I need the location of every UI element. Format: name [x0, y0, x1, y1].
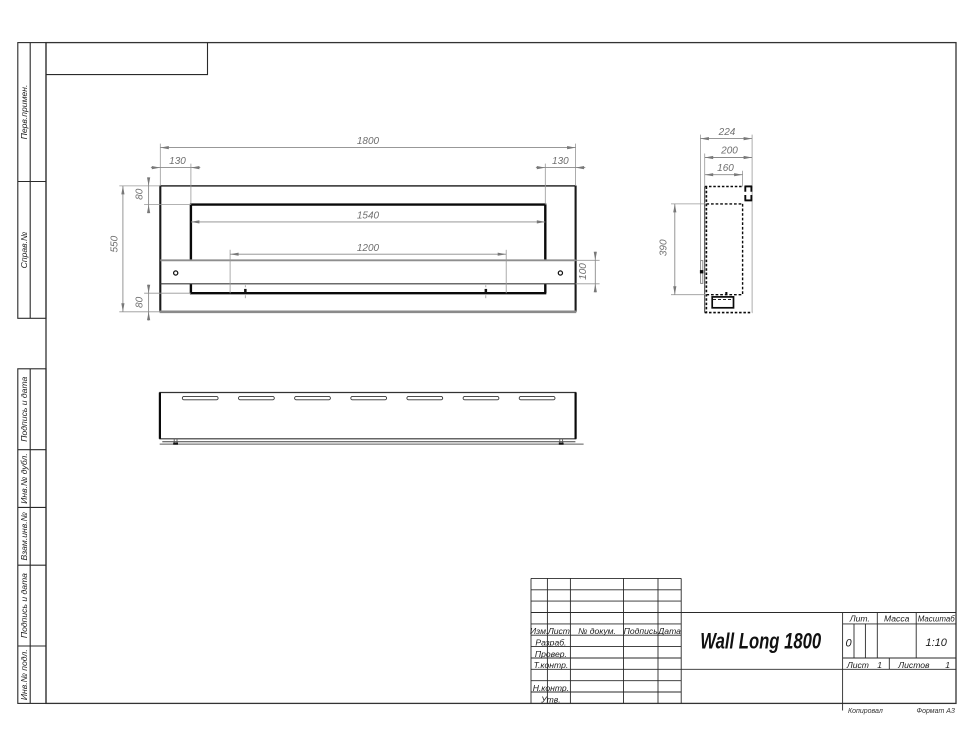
svg-text:100: 100: [578, 263, 589, 280]
svg-text:0: 0: [845, 637, 852, 649]
svg-text:1540: 1540: [357, 211, 380, 222]
svg-text:130: 130: [169, 156, 186, 167]
svg-text:Т.контр.: Т.контр.: [534, 660, 569, 670]
svg-text:1: 1: [877, 660, 882, 670]
svg-text:Подпись: Подпись: [624, 626, 659, 636]
svg-text:1800: 1800: [357, 136, 380, 147]
svg-text:Изм.: Изм.: [530, 626, 548, 636]
svg-text:Wall Long 1800: Wall Long 1800: [700, 629, 821, 654]
svg-text:1:10: 1:10: [925, 637, 947, 649]
svg-text:Утв.: Утв.: [540, 694, 561, 704]
svg-text:Подпись и дата: Подпись и дата: [19, 573, 29, 638]
svg-text:200: 200: [720, 146, 738, 157]
svg-text:Инв.№ подл.: Инв.№ подл.: [19, 649, 29, 700]
svg-text:Разраб.: Разраб.: [535, 638, 566, 648]
svg-text:Инв.№ дубл.: Инв.№ дубл.: [19, 453, 29, 503]
svg-text:Подпись и дата: Подпись и дата: [19, 376, 29, 441]
svg-text:390: 390: [659, 239, 670, 256]
svg-text:1200: 1200: [357, 243, 380, 254]
svg-text:Лист: Лист: [547, 626, 570, 636]
svg-text:Копировал: Копировал: [848, 708, 883, 715]
svg-text:Н.контр.: Н.контр.: [533, 683, 569, 693]
svg-text:550: 550: [110, 235, 121, 252]
svg-text:Взам.инв.№: Взам.инв.№: [19, 512, 29, 560]
svg-text:Формат А3: Формат А3: [917, 708, 955, 715]
svg-text:Лист: Лист: [846, 660, 869, 670]
svg-text:№ докум.: № докум.: [578, 626, 616, 636]
svg-text:Лит.: Лит.: [849, 614, 870, 624]
svg-text:224: 224: [718, 127, 736, 138]
svg-text:Масса: Масса: [884, 614, 910, 624]
svg-text:Дата: Дата: [657, 626, 681, 636]
svg-text:Провер.: Провер.: [535, 649, 567, 659]
svg-text:Листов: Листов: [897, 660, 930, 670]
svg-text:Перв.примен.: Перв.примен.: [19, 85, 29, 140]
svg-text:Справ.№: Справ.№: [19, 232, 29, 269]
svg-text:80: 80: [134, 188, 145, 200]
svg-text:160: 160: [717, 163, 734, 174]
svg-text:1: 1: [945, 660, 950, 670]
svg-text:80: 80: [134, 296, 145, 308]
svg-text:130: 130: [552, 156, 569, 167]
svg-text:Масштаб: Масштаб: [918, 614, 956, 624]
